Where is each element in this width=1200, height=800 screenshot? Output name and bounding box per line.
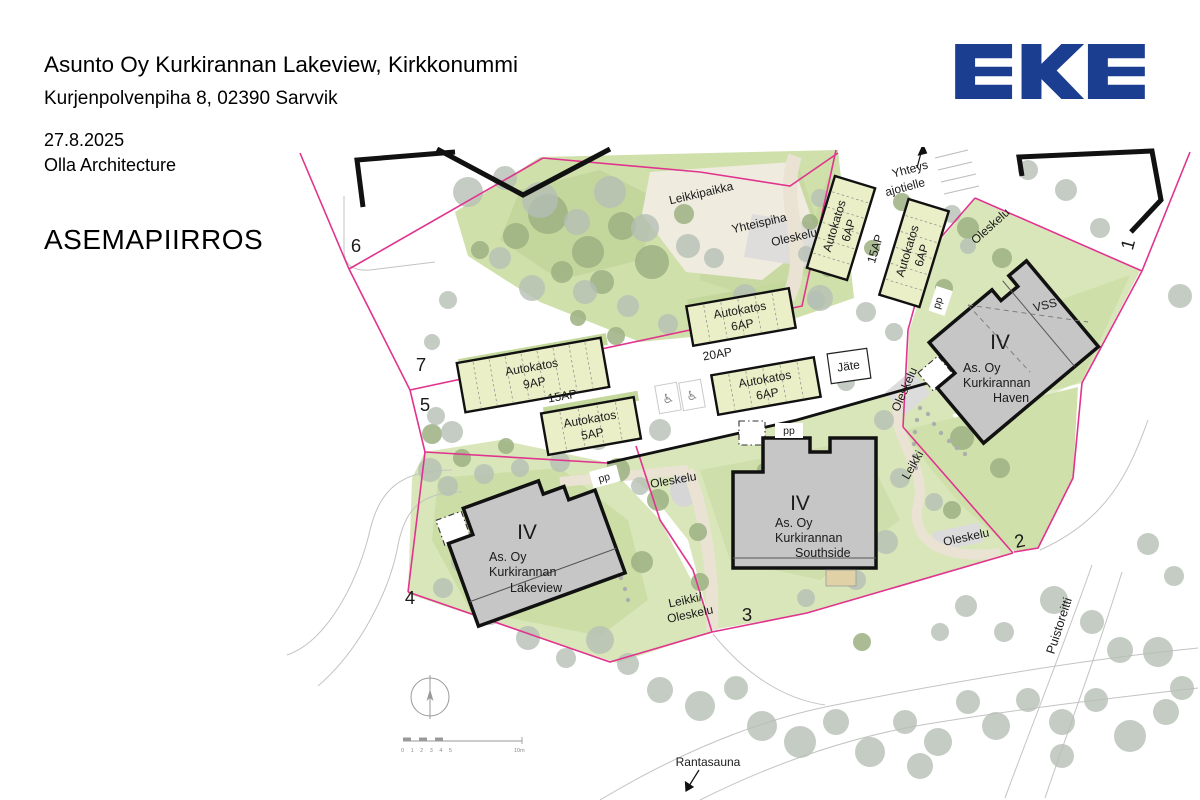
tree-icon (1055, 179, 1077, 201)
tree-icon (955, 595, 977, 617)
tree-icon (674, 204, 694, 224)
lakeview-floors: IV (517, 521, 537, 544)
tree-icon (471, 241, 489, 259)
tree-icon (498, 438, 514, 454)
tree-icon (658, 314, 678, 334)
wheelchair-icon: ♿ (685, 388, 699, 405)
tree-icon (1137, 533, 1159, 555)
label-rantasauna: Rantasauna (676, 755, 741, 769)
tree-icon (1107, 637, 1133, 663)
plot-number-3: 3 (742, 604, 752, 625)
tree-icon (747, 711, 777, 741)
tree-icon (424, 334, 440, 350)
tree-icon (1090, 218, 1110, 238)
tree-icon (1084, 688, 1108, 712)
label-15ap-east: 15AP (864, 233, 886, 265)
tree-icon (564, 209, 590, 235)
tree-icon (516, 626, 540, 650)
tree-icon (649, 419, 671, 441)
north-compass (411, 675, 449, 719)
tree-icon (519, 275, 545, 301)
label-20ap: 20AP (702, 345, 733, 364)
site-plan-drawing: ♿ ♿ Autokatos 9AP Autokatos 5AP (0, 0, 1200, 800)
tree-icon (1080, 610, 1104, 634)
tree-icon (893, 710, 917, 734)
tree-icon (631, 214, 659, 242)
plot-number-1: 1 (1116, 237, 1139, 252)
tree-icon (691, 573, 709, 591)
tree-icon (853, 633, 871, 651)
southside-name-1: As. Oy (775, 516, 813, 530)
tree-icon (943, 501, 961, 519)
tree-icon (1170, 676, 1194, 700)
lakeview-name-1: As. Oy (489, 550, 527, 564)
tree-icon (676, 234, 700, 258)
haven-floors: IV (990, 331, 1010, 354)
tree-icon (856, 302, 876, 322)
tree-icon (617, 295, 639, 317)
tree-icon (503, 223, 529, 249)
tree-icon (807, 291, 825, 309)
plot-number-7: 7 (416, 354, 426, 375)
wheelchair-icon: ♿ (661, 391, 675, 408)
tree-icon (956, 690, 980, 714)
tree-icon (433, 578, 453, 598)
carport-6ap-mid: Autokatos 6AP (711, 357, 820, 414)
tree-icon (924, 728, 952, 756)
tree-icon (982, 712, 1010, 740)
haven-name-2: Kurkirannan (963, 376, 1030, 390)
lakeview-name-3: Lakeview (510, 581, 563, 595)
tree-icon (685, 691, 715, 721)
tree-icon (635, 245, 669, 279)
southside-name-3: Southside (795, 546, 851, 560)
tree-icon (885, 323, 903, 341)
tree-icon (1168, 284, 1192, 308)
accessible-parking: ♿ ♿ (655, 379, 706, 413)
tree-icon (1049, 709, 1075, 735)
tree-icon (586, 626, 614, 654)
tree-icon (607, 327, 625, 345)
haven-name-1: As. Oy (963, 361, 1001, 375)
tree-icon (994, 622, 1014, 642)
tree-icon (1164, 566, 1184, 586)
tree-icon (992, 248, 1012, 268)
southside-floors: IV (790, 492, 810, 515)
tree-icon (797, 589, 815, 607)
tree-icon (556, 648, 576, 668)
site-plan-page: Asunto Oy Kurkirannan Lakeview, Kirkkonu… (0, 0, 1200, 800)
tree-icon (1114, 720, 1146, 752)
tree-icon (1016, 688, 1040, 712)
tree-icon (704, 248, 724, 268)
tree-icon (874, 410, 894, 430)
tree-icon (925, 493, 943, 511)
tree-icon (823, 709, 849, 735)
tree-icon (453, 177, 483, 207)
haven-name-3: Haven (993, 391, 1029, 405)
tree-icon (439, 291, 457, 309)
tree-icon (631, 551, 653, 573)
label-pp: pp (783, 425, 795, 437)
scale-bar: 0 1 2 3 4 5 10m (401, 737, 525, 754)
plot-number-4: 4 (405, 587, 415, 608)
label-yhteys-1: Yhteys (890, 158, 929, 181)
scale-ticks: 0 1 2 3 4 5 (401, 748, 455, 754)
plot-number-5: 5 (420, 394, 430, 415)
plot-number-6: 6 (351, 235, 361, 256)
tree-icon (474, 464, 494, 484)
lakeview-name-2: Kurkirannan (489, 565, 556, 579)
sauna-terrace (826, 570, 856, 586)
tree-icon (1143, 637, 1173, 667)
tree-icon (453, 449, 471, 467)
tree-icon (1153, 699, 1179, 725)
tree-icon (551, 261, 573, 283)
tree-icon (855, 737, 885, 767)
tree-icon (489, 247, 511, 269)
tree-icon (572, 236, 604, 268)
tree-icon (511, 459, 529, 477)
tree-icon (724, 676, 748, 700)
southside-name-2: Kurkirannan (775, 531, 842, 545)
tree-icon (438, 476, 458, 496)
tree-icon (784, 726, 816, 758)
tree-icon (990, 458, 1010, 478)
tree-icon (441, 421, 463, 443)
tree-icon (1050, 744, 1074, 768)
tree-icon (907, 753, 933, 779)
tree-icon (689, 523, 707, 541)
tree-icon (570, 310, 586, 326)
tree-icon (594, 176, 626, 208)
tree-icon (931, 623, 949, 641)
tree-icon (647, 677, 673, 703)
scale-end: 10m (514, 748, 525, 754)
tree-icon (573, 280, 597, 304)
tree-icon (422, 424, 442, 444)
